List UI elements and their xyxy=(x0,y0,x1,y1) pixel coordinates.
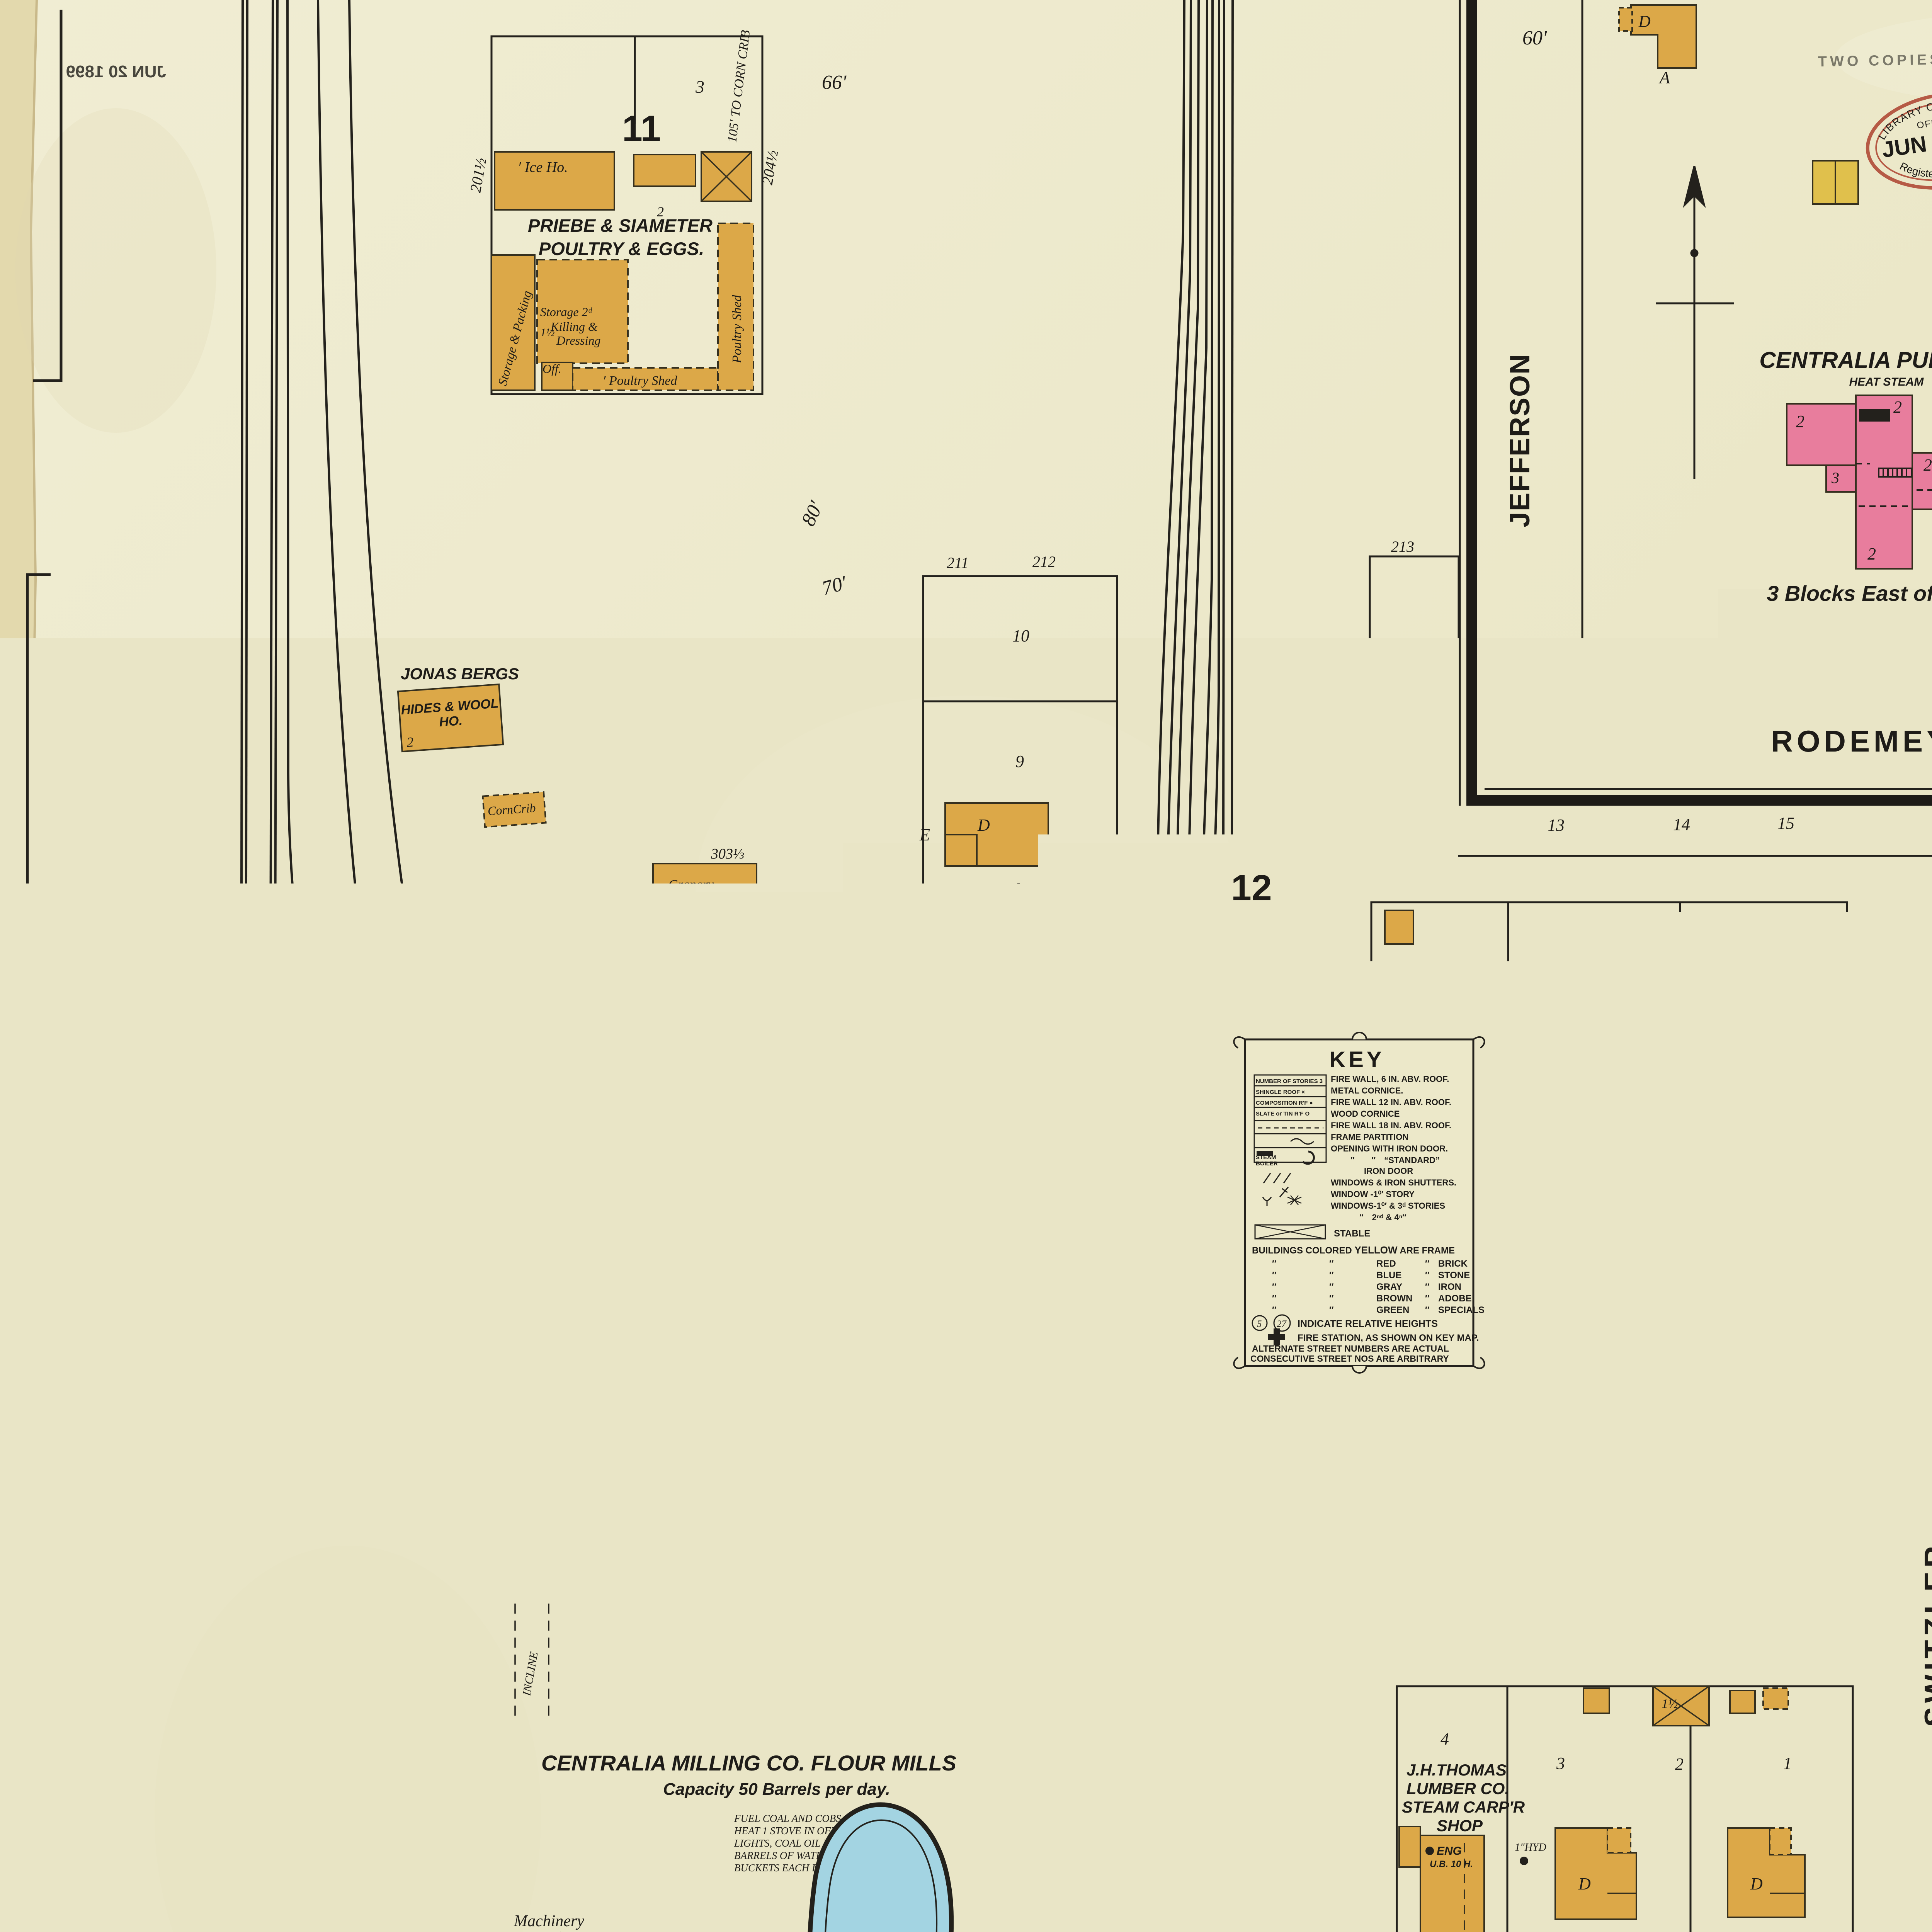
svg-text:3: 3 xyxy=(1831,469,1839,486)
svg-text:BRICK: BRICK xyxy=(1438,1259,1468,1269)
svg-text:FIRE WALL, 6 IN. ABV. ROOF.: FIRE WALL, 6 IN. ABV. ROOF. xyxy=(1331,1074,1449,1084)
svg-text:E: E xyxy=(706,1318,716,1336)
svg-text:Granary: Granary xyxy=(618,1140,666,1156)
svg-text:″: ″ xyxy=(1329,1305,1334,1315)
svg-text:Off.: Off. xyxy=(681,1315,697,1326)
svg-text:BLUE: BLUE xyxy=(1376,1270,1401,1281)
svg-text:304: 304 xyxy=(959,1217,982,1234)
svg-text:8: 8 xyxy=(1026,1673,1034,1692)
svg-text:202: 202 xyxy=(560,394,583,411)
svg-text:″: ″ xyxy=(1272,1259,1277,1269)
svg-text:2: 2 xyxy=(406,734,414,750)
svg-text:303½: 303½ xyxy=(691,1102,725,1118)
svg-text:PLATFORM 1′: PLATFORM 1′ xyxy=(1124,1482,1139,1677)
svg-text:SHOP: SHOP xyxy=(1437,1816,1483,1835)
svg-text:66': 66' xyxy=(822,71,847,94)
svg-text:27: 27 xyxy=(1277,1319,1287,1329)
svg-text:A: A xyxy=(1658,68,1670,87)
svg-text:U.B. 10 H.: U.B. 10 H. xyxy=(1430,1859,1473,1869)
svg-text:STEAM CARP′R: STEAM CARP′R xyxy=(1402,1798,1525,1816)
svg-text:319: 319 xyxy=(1765,1340,1788,1358)
svg-text:JUN 20 1899: JUN 20 1899 xyxy=(66,62,166,81)
svg-text:1: 1 xyxy=(1782,992,1791,1010)
svg-text:OPENING WITH IRON DOOR.: OPENING WITH IRON DOOR. xyxy=(1331,1144,1448,1153)
svg-text:HICKMAN: HICKMAN xyxy=(939,469,1109,503)
svg-text:2: 2 xyxy=(1060,1468,1066,1483)
svg-text:BUILDINGS COLORED YELLOW ARE F: BUILDINGS COLORED YELLOW ARE FRAME xyxy=(1252,1244,1455,1256)
svg-text:213: 213 xyxy=(1391,538,1414,555)
svg-text:3 Blocks East of Public Square: 3 Blocks East of Public Square xyxy=(1767,581,1932,605)
svg-text:D: D xyxy=(1750,1874,1763,1893)
svg-text:D: D xyxy=(1561,1085,1574,1105)
svg-text:9: 9 xyxy=(1003,31,1011,48)
svg-text:Poultry Shed: Poultry Shed xyxy=(730,294,744,364)
svg-text:203: 203 xyxy=(630,394,653,411)
svg-text:′ Freight: ′ Freight xyxy=(333,1638,381,1653)
svg-text:3: 3 xyxy=(1569,992,1578,1010)
svg-text:Machinery: Machinery xyxy=(514,1912,584,1930)
svg-text:Granary: Granary xyxy=(668,878,714,892)
svg-text:D: D xyxy=(1638,12,1651,31)
svg-text:FIRE WALL 18 IN. ABV. ROOF.: FIRE WALL 18 IN. ABV. ROOF. xyxy=(1331,1121,1451,1130)
svg-text:4: 4 xyxy=(1428,242,1436,261)
svg-text:″: ″ xyxy=(1425,1293,1430,1304)
svg-text:Depot: Depot xyxy=(340,1654,374,1669)
svg-text:1½: 1½ xyxy=(1662,1697,1678,1711)
svg-text:212: 212 xyxy=(1032,553,1056,570)
svg-text:SWITZLER: SWITZLER xyxy=(1918,1542,1932,1727)
svg-text:RODEMEYER: RODEMEYER xyxy=(1771,724,1932,758)
svg-text:15: 15 xyxy=(1782,1536,1799,1555)
svg-text:CONSECUTIVE STREET NOS ARE ARB: CONSECUTIVE STREET NOS ARE ARBITRARY xyxy=(1250,1354,1449,1364)
svg-text:IRON: IRON xyxy=(1438,1282,1461,1292)
svg-text:11: 11 xyxy=(1122,164,1161,205)
svg-text:12: 12 xyxy=(1231,867,1272,908)
svg-text:″: ″ xyxy=(1272,1282,1277,1292)
svg-text:″: ″ xyxy=(1425,1259,1430,1269)
svg-text:CENTRALIA MILLING CO. FLOUR MI: CENTRALIA MILLING CO. FLOUR MILLS xyxy=(541,1751,956,1775)
svg-text:205: 205 xyxy=(978,392,1001,409)
svg-text:′ Baggage: ′ Baggage xyxy=(332,1420,381,1434)
svg-text:Dressing: Dressing xyxy=(556,333,600,347)
svg-text:211: 211 xyxy=(947,554,969,571)
svg-text:3: 3 xyxy=(1556,1754,1565,1773)
svg-text:BROWN: BROWN xyxy=(1376,1293,1412,1304)
svg-text:SCALES: SCALES xyxy=(590,1823,600,1855)
svg-text:BOILER: BOILER xyxy=(1256,1160,1278,1167)
svg-text:″: ″ xyxy=(1329,1270,1334,1281)
svg-text:SHINGLE ROOF ×: SHINGLE ROOF × xyxy=(1256,1089,1305,1095)
svg-text:D: D xyxy=(1780,1416,1792,1434)
svg-text:15: 15 xyxy=(1777,814,1794,833)
svg-text:7: 7 xyxy=(1020,1007,1029,1026)
svg-text:WINDOWS-1⁰′ & 3ᵈ STORIES: WINDOWS-1⁰′ & 3ᵈ STORIES xyxy=(1331,1201,1445,1211)
svg-text:302: 302 xyxy=(562,1217,585,1234)
svg-text:RED: RED xyxy=(1376,1259,1396,1269)
svg-text:MILLS: MILLS xyxy=(472,1886,510,1900)
svg-text:14: 14 xyxy=(1673,815,1690,834)
svg-text:NUMBER OF STORIES 3: NUMBER OF STORIES 3 xyxy=(1256,1078,1323,1085)
svg-text:E: E xyxy=(919,825,930,844)
svg-text:D: D xyxy=(1578,1874,1591,1893)
svg-text:301: 301 xyxy=(313,1219,336,1236)
svg-text:308: 308 xyxy=(1695,1181,1719,1198)
svg-text:PRIEBE & SIAMETER: PRIEBE & SIAMETER xyxy=(528,215,713,236)
svg-text:3: 3 xyxy=(695,77,704,97)
svg-text:′ Poultry Shed: ′ Poultry Shed xyxy=(603,374,678,388)
svg-text:GRAY: GRAY xyxy=(1376,1282,1402,1292)
svg-text:″: ″ xyxy=(1425,1270,1430,1281)
svg-text:KEY: KEY xyxy=(1329,1047,1384,1072)
svg-text:Granary: Granary xyxy=(614,1075,662,1091)
svg-text:″ 2ⁿᵈ & 4ⁿ″: ″ 2ⁿᵈ & 4ⁿ″ xyxy=(1359,1213,1406,1222)
svg-text:Off.: Off. xyxy=(543,362,561,376)
svg-text:JEFFERSON: JEFFERSON xyxy=(1505,354,1536,527)
svg-text:10: 10 xyxy=(1012,626,1029,645)
svg-text:D: D xyxy=(1706,1109,1717,1126)
svg-text:″: ″ xyxy=(1329,1293,1334,1304)
svg-text:2: 2 xyxy=(1519,1413,1526,1429)
svg-text:4: 4 xyxy=(1440,1730,1449,1748)
svg-text:5: 5 xyxy=(1257,1319,1262,1329)
svg-text:′ Hog Pen.: ′ Hog Pen. xyxy=(1384,785,1440,799)
svg-text:317: 317 xyxy=(1495,1343,1519,1361)
svg-text:ALTERNATE STREET NUMBERS ARE A: ALTERNATE STREET NUMBERS ARE ACTUAL xyxy=(1252,1344,1449,1354)
svg-text:″: ″ xyxy=(1329,1259,1334,1269)
svg-text:311: 311 xyxy=(446,1338,468,1355)
svg-text:310: 310 xyxy=(330,1339,354,1357)
svg-text:1″HYD: 1″HYD xyxy=(1515,1842,1546,1854)
svg-text:P L A T F O R M 1′: P L A T F O R M 1′ xyxy=(298,1421,312,1662)
svg-text:12: 12 xyxy=(1445,1536,1462,1555)
svg-text:2: 2 xyxy=(1923,456,1932,474)
svg-text:2: 2 xyxy=(1757,1415,1764,1431)
svg-text:318: 318 xyxy=(1636,1342,1660,1359)
svg-text:2: 2 xyxy=(1893,398,1902,417)
svg-text:8: 8 xyxy=(1013,879,1022,898)
svg-text:″ ″ “STANDARD”: ″ ″ “STANDARD” xyxy=(1350,1155,1440,1165)
svg-text:303: 303 xyxy=(706,1217,730,1234)
svg-text:ADOBE: ADOBE xyxy=(1438,1293,1472,1304)
svg-text:FUEL COAL AND COBS: FUEL COAL AND COBS xyxy=(734,1813,841,1824)
svg-text:WOOD CORNICE: WOOD CORNICE xyxy=(1331,1109,1400,1119)
svg-text:SCALES: SCALES xyxy=(672,1293,707,1304)
svg-text:4: 4 xyxy=(469,1871,476,1885)
svg-text:315: 315 xyxy=(1066,1339,1090,1357)
svg-text:2: 2 xyxy=(39,1630,80,1712)
svg-text:2: 2 xyxy=(1867,544,1876,563)
svg-text:303⅓: 303⅓ xyxy=(711,846,744,862)
svg-text:POULTRY & EGGS.: POULTRY & EGGS. xyxy=(539,238,704,259)
svg-text:4: 4 xyxy=(1435,990,1444,1009)
svg-text:312: 312 xyxy=(543,1337,566,1354)
svg-text:14: 14 xyxy=(1676,1536,1693,1555)
svg-text:60′: 60′ xyxy=(1519,692,1544,714)
svg-text:80′: 80′ xyxy=(839,1365,864,1387)
svg-text:6: 6 xyxy=(1028,1896,1036,1915)
svg-text:12: 12 xyxy=(1341,19,1357,37)
svg-text:Killing &: Killing & xyxy=(550,320,598,333)
svg-text:305: 305 xyxy=(1057,1217,1080,1234)
svg-text:CENTRALIA PUBLIC SCHOOL: CENTRALIA PUBLIC SCHOOL xyxy=(1759,347,1932,373)
svg-text:1⁰′ Fl.: 1⁰′ Fl. xyxy=(549,1930,582,1932)
svg-text:SLATE or TIN R′F O: SLATE or TIN R′F O xyxy=(1256,1111,1310,1117)
svg-text:COMPOSITION R′F ●: COMPOSITION R′F ● xyxy=(1256,1100,1313,1106)
svg-text:′ Pass’r: ′ Pass’r xyxy=(333,1537,376,1553)
svg-text:1: 1 xyxy=(1783,1754,1792,1773)
svg-text:ALLEN: ALLEN xyxy=(979,1258,1077,1288)
svg-text:STEAM: STEAM xyxy=(1256,1154,1276,1161)
svg-text:Supplies: Supplies xyxy=(447,1395,489,1409)
svg-text:Storage 2ᵈ: Storage 2ᵈ xyxy=(540,305,592,319)
svg-text:7: 7 xyxy=(1027,1784,1036,1803)
svg-text:IRON CLAD: IRON CLAD xyxy=(504,1781,552,1791)
svg-text:2: 2 xyxy=(657,204,664,219)
svg-text:309: 309 xyxy=(1805,1179,1828,1197)
svg-text:INDICATE RELATIVE HEIGHTS: INDICATE RELATIVE HEIGHTS xyxy=(1298,1318,1438,1329)
svg-text:D: D xyxy=(1670,1416,1682,1434)
svg-text:13: 13 xyxy=(1553,1534,1570,1553)
svg-text:314: 314 xyxy=(968,1340,991,1358)
svg-text:5: 5 xyxy=(1343,244,1351,263)
svg-text:″: ″ xyxy=(1272,1305,1277,1315)
svg-text:9: 9 xyxy=(1023,1558,1032,1577)
svg-text:FIRE WALL 12 IN. ABV. ROOF.: FIRE WALL 12 IN. ABV. ROOF. xyxy=(1331,1097,1451,1107)
svg-text:2: 2 xyxy=(1796,412,1804,431)
svg-text:D: D xyxy=(1544,1416,1556,1434)
svg-text:1½: 1½ xyxy=(540,326,555,339)
svg-text:D: D xyxy=(977,816,990,835)
svg-text:D: D xyxy=(956,255,969,274)
svg-text:46′: 46′ xyxy=(459,1903,473,1917)
svg-text:ENG: ENG xyxy=(1437,1845,1462,1857)
svg-text:207: 207 xyxy=(1419,395,1443,412)
svg-text:GREEN: GREEN xyxy=(1376,1305,1409,1315)
svg-text:HEAT STEAM: HEAT STEAM xyxy=(1849,376,1924,388)
svg-text:J.H.THOMAS: J.H.THOMAS xyxy=(1406,1761,1507,1779)
svg-text:STABLE: STABLE xyxy=(1334,1228,1370,1239)
svg-text:RAILROAD: RAILROAD xyxy=(138,1466,171,1745)
svg-text:Capacity 50 Barrels per day.: Capacity 50 Barrels per day. xyxy=(663,1780,890,1799)
svg-text:13: 13 xyxy=(1301,1647,1342,1688)
svg-text:HEAT 1 STOVE IN OFF.: HEAT 1 STOVE IN OFF. xyxy=(734,1825,838,1837)
svg-text:LUMBER CO.: LUMBER CO. xyxy=(1406,1779,1509,1798)
svg-text:2: 2 xyxy=(1536,1100,1543,1116)
svg-text:″: ″ xyxy=(1425,1282,1430,1292)
svg-text:WILSON: WILSON xyxy=(932,1497,964,1648)
svg-text:Depot: Depot xyxy=(1088,1502,1106,1542)
svg-text:HO.: HO. xyxy=(439,713,463,730)
svg-text:″: ″ xyxy=(1272,1293,1277,1304)
svg-text:204: 204 xyxy=(717,394,740,411)
svg-text:IRON DOOR: IRON DOOR xyxy=(1364,1166,1413,1176)
svg-text:WINDOW -1⁰′ STORY: WINDOW -1⁰′ STORY xyxy=(1331,1189,1415,1199)
svg-text:Depot: Depot xyxy=(340,1553,374,1569)
svg-text:FRAME PARTITION: FRAME PARTITION xyxy=(1331,1132,1408,1142)
svg-text:WINDOWS & IRON SHUTTERS.: WINDOWS & IRON SHUTTERS. xyxy=(1331,1178,1456,1187)
svg-text:13: 13 xyxy=(1430,16,1446,34)
svg-text:9: 9 xyxy=(1015,752,1024,771)
svg-text:METAL CORNICE.: METAL CORNICE. xyxy=(1331,1086,1403,1095)
svg-text:307: 307 xyxy=(1561,1180,1586,1197)
svg-text:″: ″ xyxy=(1272,1270,1277,1281)
svg-text:Off.: Off. xyxy=(551,1844,570,1857)
svg-text:STONE: STONE xyxy=(1438,1270,1470,1281)
svg-text:2: 2 xyxy=(1675,1755,1684,1774)
svg-text:2: 2 xyxy=(947,233,954,251)
svg-text:FIRE STATION, AS SHOWN ON KEY: FIRE STATION, AS SHOWN ON KEY MAP. xyxy=(1298,1333,1479,1343)
svg-text:2: 2 xyxy=(1645,1415,1652,1431)
svg-text:10: 10 xyxy=(1019,1426,1036,1445)
svg-text:2: 2 xyxy=(1693,1117,1701,1134)
svg-text:206: 206 xyxy=(1333,396,1356,414)
svg-text:2: 2 xyxy=(511,1878,517,1893)
svg-text:11: 11 xyxy=(622,108,661,149)
svg-text:JONAS BERGS: JONAS BERGS xyxy=(401,665,519,683)
svg-text:2: 2 xyxy=(1684,993,1692,1012)
svg-text:″: ″ xyxy=(1425,1305,1430,1315)
svg-text:60′: 60′ xyxy=(1522,27,1548,49)
svg-text:G: G xyxy=(766,1425,778,1444)
svg-text:13: 13 xyxy=(1548,816,1565,835)
svg-text:SPECIALS: SPECIALS xyxy=(1438,1305,1485,1315)
svg-text:201: 201 xyxy=(497,394,520,411)
svg-text:6: 6 xyxy=(1023,1129,1032,1148)
svg-text:′ Ice Ho.: ′ Ice Ho. xyxy=(518,159,568,175)
svg-text:″: ″ xyxy=(1329,1282,1334,1292)
